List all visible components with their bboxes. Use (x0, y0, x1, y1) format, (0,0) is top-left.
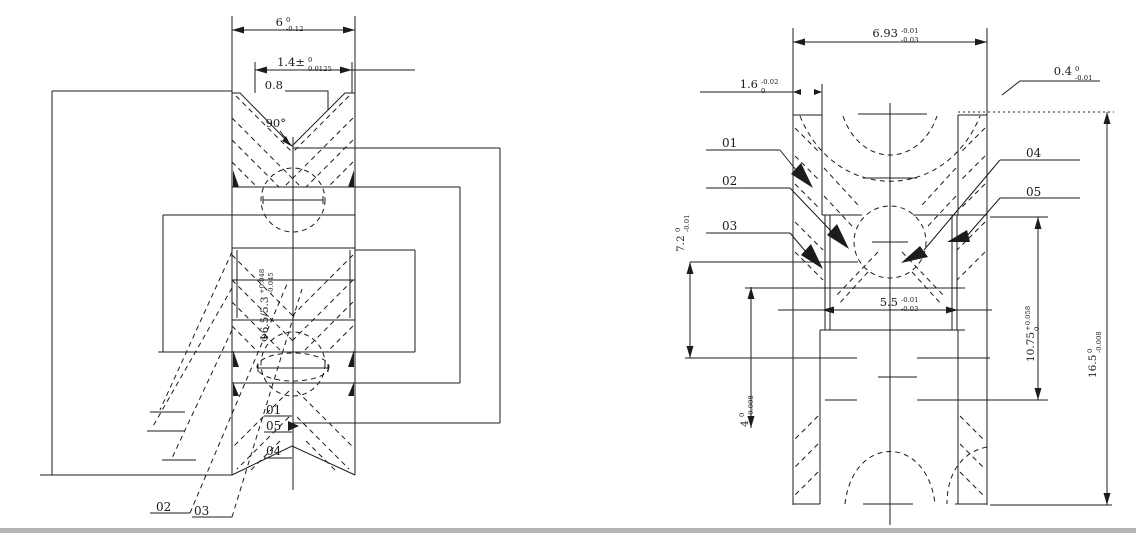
right-part-label-04: 04 (1026, 146, 1042, 160)
dim-right-groove-depth: 7.2 0 -0.01 (674, 215, 691, 252)
dim-step-dia-sup: 0 (738, 413, 746, 417)
dim-lip-width-sup: 0 (1075, 65, 1079, 73)
dim-1-6-left-arrowhead (793, 89, 801, 95)
right-dimension-lines (685, 28, 1107, 505)
dim-bore-dia-sub: 0 (1033, 327, 1041, 331)
dim-left-bore-sup: +0.048 (258, 269, 266, 294)
dim-groove-depth-sub: -0.01 (683, 215, 691, 232)
dim-left-chamfer: 0.8 (265, 78, 283, 92)
right-centerlines (863, 103, 917, 525)
dim-left-groove-width-sup: 0 (308, 56, 312, 64)
technical-drawing-canvas: 6 0 -0.12 1.4± 0 0.0125 0.8 90° Φ6.5/5.3… (0, 0, 1136, 533)
right-part-label-02: 02 (722, 174, 737, 188)
dim-right-outer-width: 6.93 -0.01 -0.03 (872, 26, 918, 44)
dim-left-width-sup: 0 (286, 16, 290, 24)
right-part-label-05: 05 (1026, 185, 1041, 199)
dim-left-groove-width-sub: 0.0125 (308, 65, 332, 73)
dim-outer-width-sub: -0.03 (901, 36, 918, 44)
scan-edge-artifact (0, 528, 1136, 533)
drawing-sheet: 6 0 -0.12 1.4± 0 0.0125 0.8 90° Φ6.5/5.3… (0, 0, 1136, 533)
dim-bore-dia-sup: +0.058 (1024, 306, 1032, 331)
left-part-label-02: 02 (156, 500, 171, 514)
dim-left-groove-angle: 90° (266, 116, 286, 130)
dim-step-dia-value: 4 (739, 420, 751, 427)
left-exploded-leader-lines (152, 252, 302, 517)
dim-outer-dia-sub: -0.008 (1095, 331, 1103, 353)
right-part-label-03: 03 (722, 219, 737, 233)
dim-left-groove-width-value: 1.4± (277, 55, 305, 69)
dim-1-6-right-arrowhead (814, 89, 822, 95)
left-part-label-03: 03 (194, 504, 209, 518)
label-05-arrowhead (947, 230, 970, 242)
left-part-label-05: 05 (266, 419, 281, 433)
left-section-view: 6 0 -0.12 1.4± 0 0.0125 0.8 90° Φ6.5/5.3… (40, 15, 500, 518)
dim-step-dia-sub: -0.008 (747, 395, 755, 417)
left-part-label-04: 04 (266, 444, 282, 458)
dim-inner-width-sub: -0.03 (901, 305, 918, 313)
dim-right-lip-width: 0.4 0 -0.01 (1054, 64, 1093, 82)
dim-flange-width-sup: -0.02 (761, 78, 778, 86)
dim-groove-depth-sup: 0 (674, 228, 682, 232)
left-part-label-01: 01 (266, 403, 281, 417)
dim-lip-width-sub: -0.01 (1075, 74, 1092, 82)
dim-inner-width-value: 5.5 (880, 295, 898, 309)
dim-right-outer-dia: 16.5 0 -0.008 (1086, 331, 1103, 378)
dim-left-bore: Φ6.5/5.3 +0.048 -0.045 (258, 269, 275, 342)
dim-left-width-sub: -0.12 (286, 25, 303, 33)
label-01-arrowhead (791, 163, 813, 188)
dim-outer-dia-sup: 0 (1086, 349, 1094, 353)
dim-outer-dia-value: 16.5 (1087, 355, 1099, 378)
dim-bore-dia-value: 10.75 (1025, 332, 1037, 362)
dim-flange-width-value: 1.6 (740, 77, 758, 91)
dim-inner-width-sup: -0.01 (901, 296, 918, 304)
left-outline (40, 93, 355, 475)
dim-left-bore-value: Φ6.5/5.3 (259, 296, 271, 342)
dim-flange-width-sub: 0 (761, 87, 765, 95)
dim-left-bore-sub: -0.045 (267, 272, 275, 294)
right-leader-lines (706, 150, 1080, 252)
dim-left-width-value: 6 (276, 15, 283, 29)
dim-outer-width-sup: -0.01 (901, 27, 918, 35)
label-03-arrowhead (801, 244, 823, 269)
right-part-label-01: 01 (722, 136, 737, 150)
dim-groove-depth-value: 7.2 (675, 235, 687, 252)
dim-right-step-dia: 4 0 -0.008 (738, 395, 755, 427)
dim-lip-width-value: 0.4 (1054, 64, 1072, 78)
right-section-view: 6.93 -0.01 -0.03 1.6 -0.02 0 0.4 0 -0.01… (674, 26, 1114, 525)
dim-outer-width-value: 6.93 (872, 26, 898, 40)
